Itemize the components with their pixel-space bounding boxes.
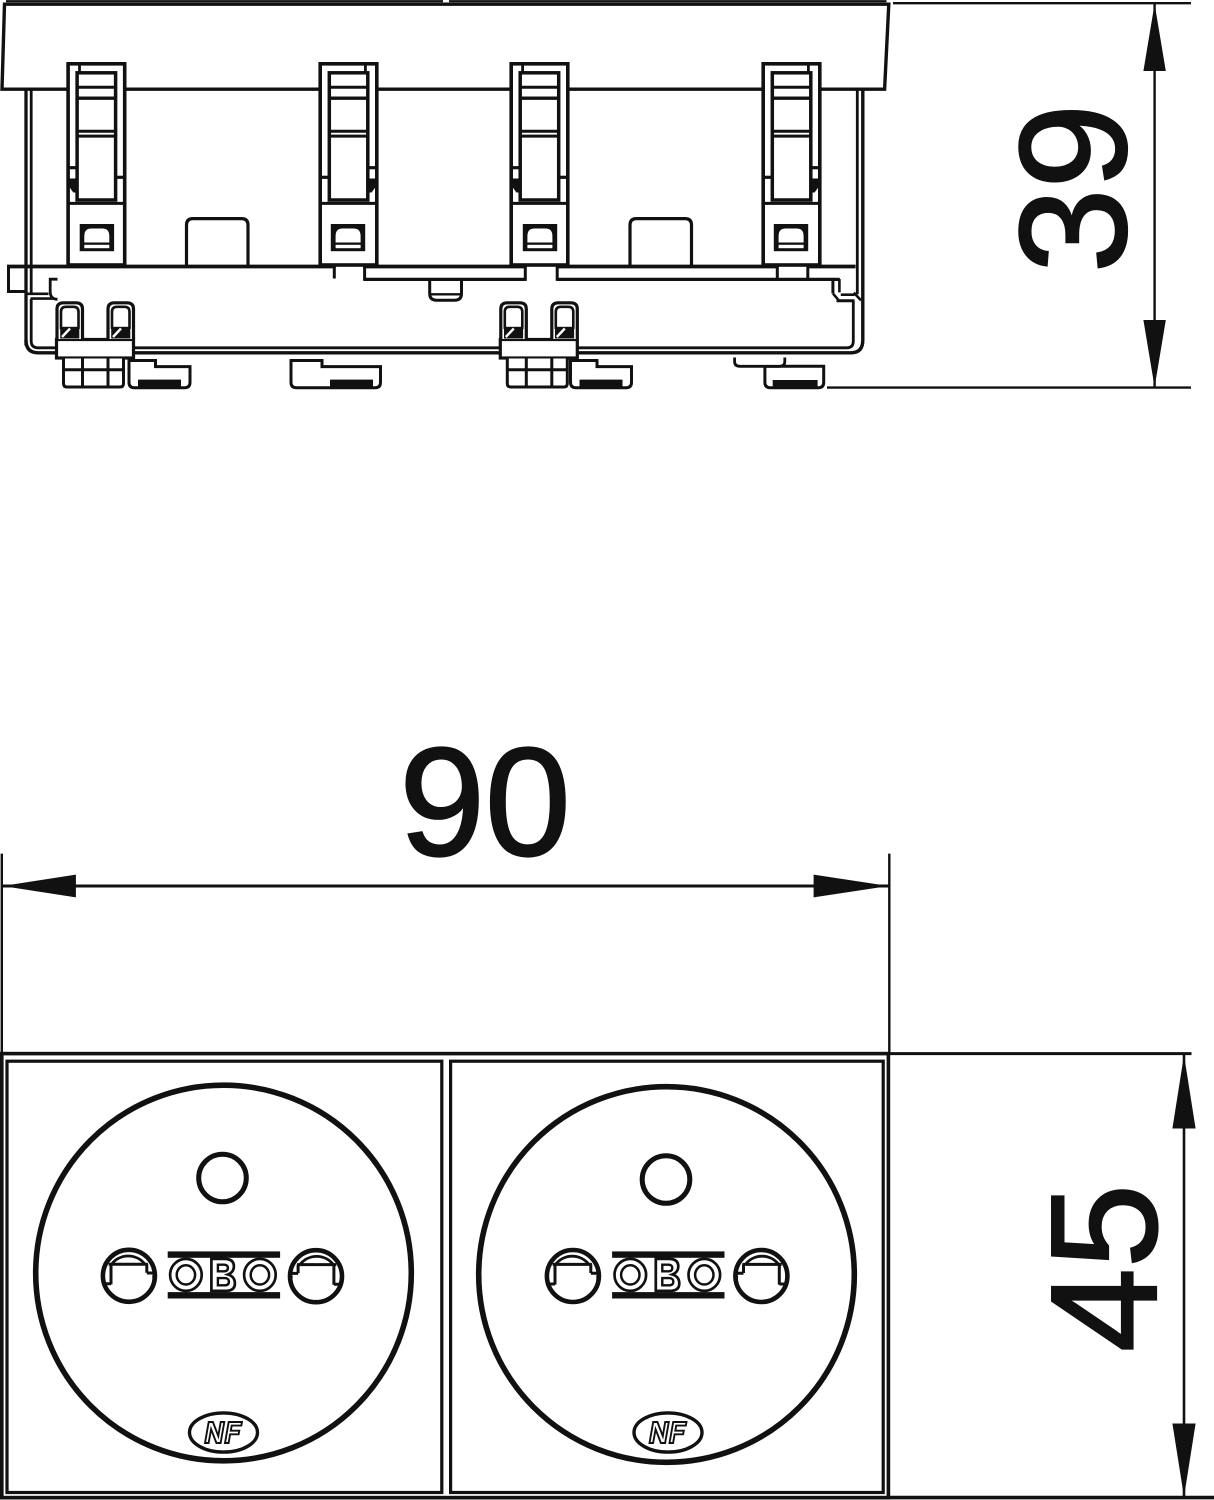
svg-text:90: 90: [399, 716, 570, 888]
svg-text:39: 39: [989, 104, 1159, 273]
svg-text:45: 45: [1019, 1184, 1188, 1352]
